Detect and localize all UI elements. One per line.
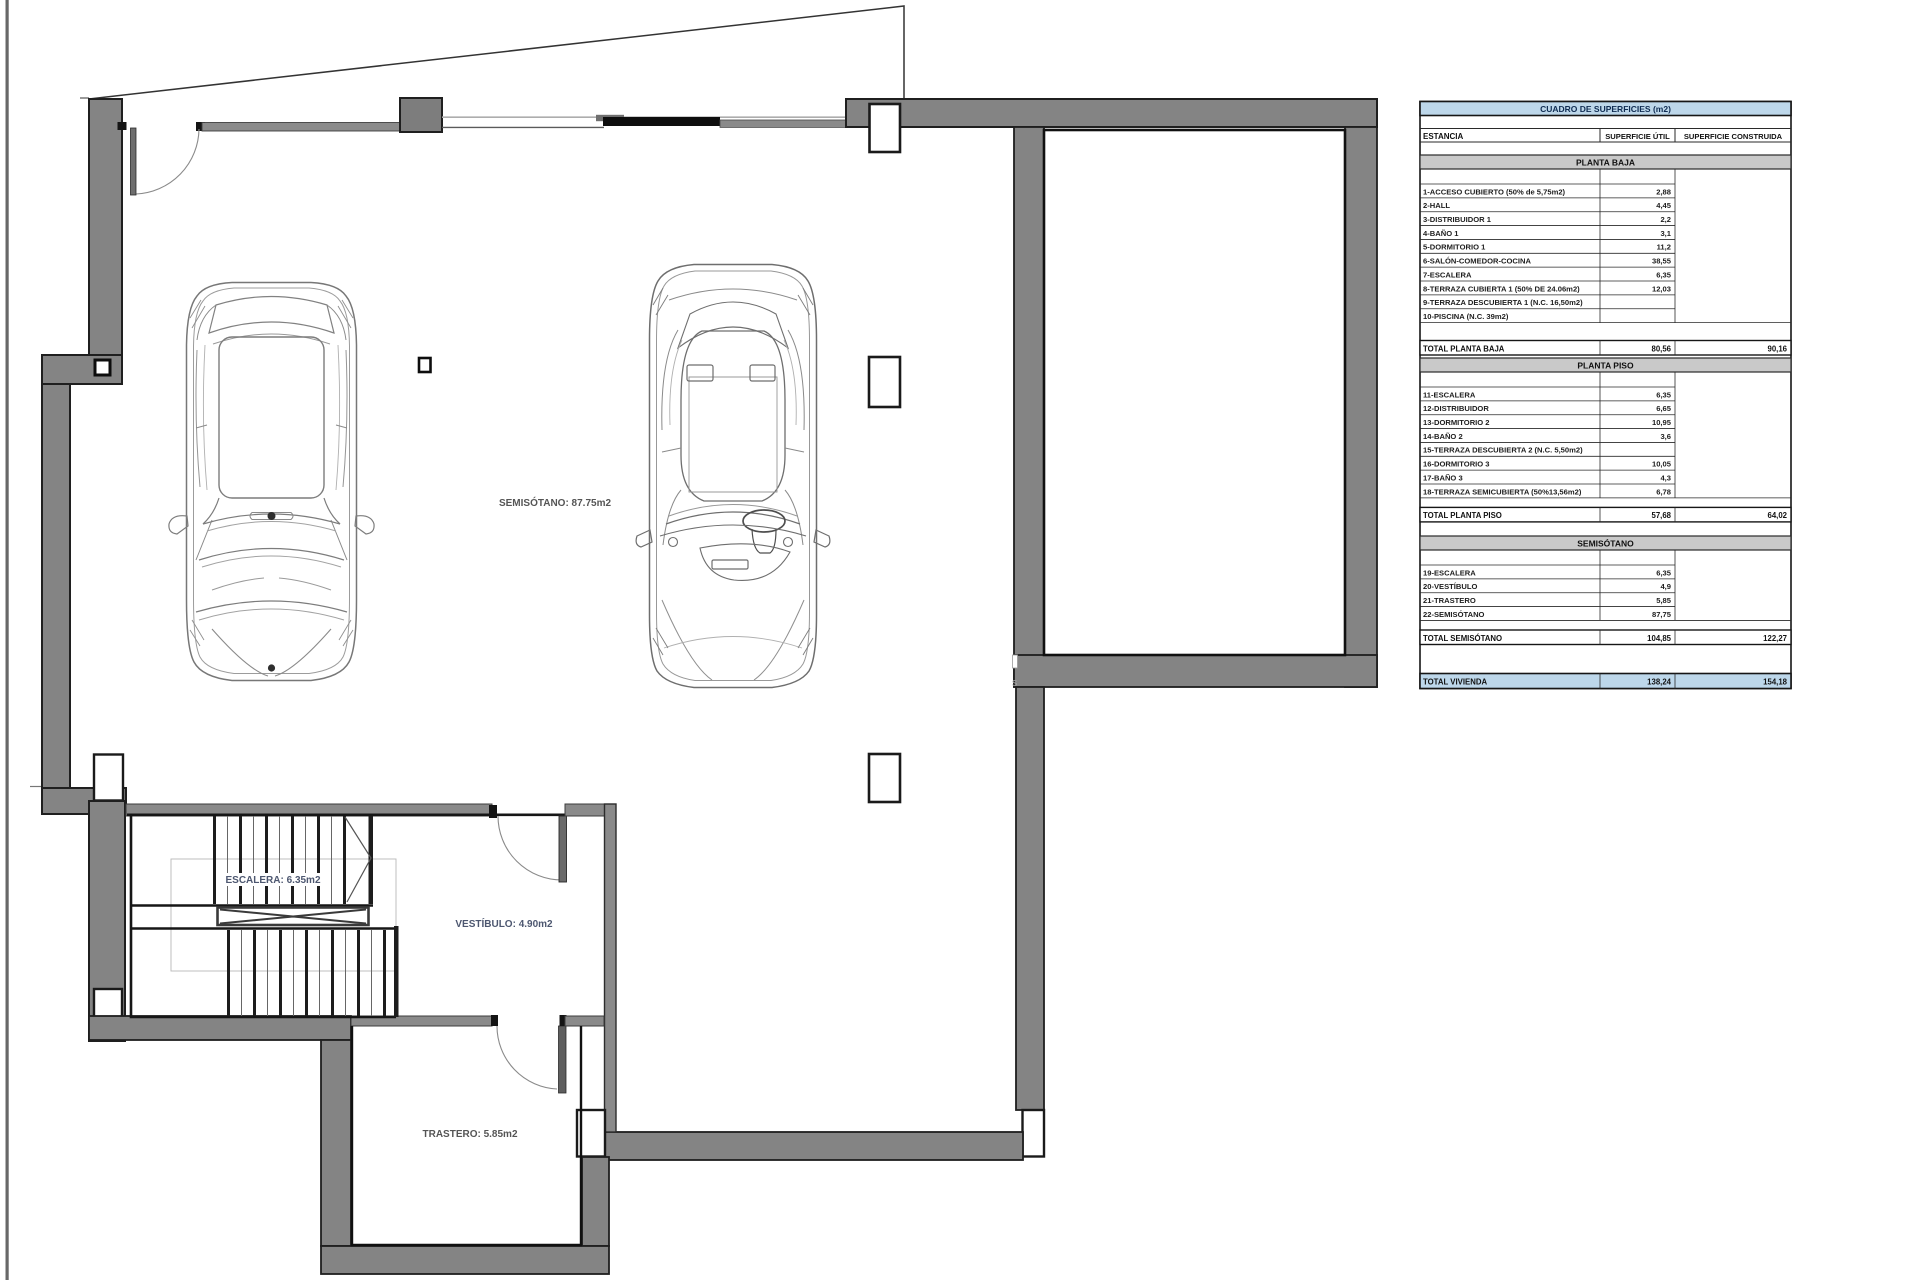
svg-text:17-BAÑO 3: 17-BAÑO 3 [1423,473,1463,482]
svg-text:6,35: 6,35 [1656,390,1672,399]
svg-text:10,95: 10,95 [1652,418,1672,427]
svg-text:57,68: 57,68 [1651,511,1671,520]
svg-text:ESCALERA: 6.35m2: ESCALERA: 6.35m2 [225,875,320,886]
svg-text:SEMISÓTANO: 87.75m2: SEMISÓTANO: 87.75m2 [499,496,612,509]
svg-text:4,9: 4,9 [1660,582,1671,591]
svg-text:20-VESTÍBULO: 20-VESTÍBULO [1423,582,1478,591]
svg-text:80,56: 80,56 [1651,344,1671,353]
svg-text:15-TERRAZA DESCUBIERTA 2 (N.C.: 15-TERRAZA DESCUBIERTA 2 (N.C. 5,50m2) [1423,446,1583,455]
svg-text:SUPERFICIE CONSTRUIDA: SUPERFICIE CONSTRUIDA [1684,132,1783,141]
svg-text:4,3: 4,3 [1660,473,1671,482]
svg-text:3-DISTRIBUIDOR 1: 3-DISTRIBUIDOR 1 [1423,215,1492,224]
svg-text:SUPERFICIE ÚTIL: SUPERFICIE ÚTIL [1605,132,1670,141]
svg-text:TRASTERO: 5.85m2: TRASTERO: 5.85m2 [422,1129,517,1140]
svg-text:2,2: 2,2 [1660,215,1671,224]
svg-text:CUADRO DE SUPERFICIES (m2): CUADRO DE SUPERFICIES (m2) [1540,104,1671,114]
svg-text:2,88: 2,88 [1656,187,1671,196]
svg-text:104,85: 104,85 [1647,634,1672,643]
svg-text:6-SALÓN-COMEDOR-COCINA: 6-SALÓN-COMEDOR-COCINA [1423,257,1532,266]
svg-text:PLANTA BAJA: PLANTA BAJA [1576,158,1635,168]
svg-text:13-DORMITORIO 2: 13-DORMITORIO 2 [1423,418,1490,427]
svg-text:12,03: 12,03 [1652,284,1671,293]
svg-text:11,2: 11,2 [1657,243,1671,252]
svg-text:5-DORMITORIO 1: 5-DORMITORIO 1 [1423,243,1486,252]
svg-text:21-TRASTERO: 21-TRASTERO [1423,596,1476,605]
svg-text:12-DISTRIBUIDOR: 12-DISTRIBUIDOR [1423,404,1489,413]
svg-text:38,55: 38,55 [1652,257,1672,266]
svg-text:19-ESCALERA: 19-ESCALERA [1423,568,1476,577]
svg-text:6,35: 6,35 [1656,270,1672,279]
svg-text:TOTAL SEMISÓTANO: TOTAL SEMISÓTANO [1423,634,1502,643]
svg-text:18-TERRAZA SEMICUBIERTA (50%13: 18-TERRAZA SEMICUBIERTA (50%13,56m2) [1423,487,1582,496]
svg-text:90,16: 90,16 [1767,344,1787,353]
svg-text:8-TERRAZA CUBIERTA 1 (50% DE 2: 8-TERRAZA CUBIERTA 1 (50% DE 24.06m2) [1423,284,1580,293]
svg-text:1-ACCESO CUBIERTO (50% de 5,75: 1-ACCESO CUBIERTO (50% de 5,75m2) [1423,187,1566,196]
svg-text:2-HALL: 2-HALL [1423,201,1450,210]
svg-text:22-SEMISÓTANO: 22-SEMISÓTANO [1423,610,1485,619]
svg-text:14-BAÑO 2: 14-BAÑO 2 [1423,432,1463,441]
svg-text:122,27: 122,27 [1763,634,1787,643]
svg-text:VESTÍBULO: 4.90m2: VESTÍBULO: 4.90m2 [455,917,553,930]
svg-text:4,45: 4,45 [1656,201,1672,210]
svg-text:138,24: 138,24 [1647,677,1672,686]
svg-text:ESTANCIA: ESTANCIA [1423,132,1464,141]
svg-text:11-ESCALERA: 11-ESCALERA [1423,390,1476,399]
svg-text:6,65: 6,65 [1656,404,1672,413]
svg-text:PLANTA PISO: PLANTA PISO [1577,361,1634,371]
svg-text:6,78: 6,78 [1656,487,1671,496]
svg-text:10,05: 10,05 [1652,460,1672,469]
svg-text:5,85: 5,85 [1656,596,1672,605]
svg-text:6,35: 6,35 [1656,568,1672,577]
svg-text:TOTAL PLANTA PISO: TOTAL PLANTA PISO [1423,511,1502,520]
svg-text:10-PISCINA (N.C. 39m2): 10-PISCINA (N.C. 39m2) [1423,312,1509,321]
svg-text:TOTAL PLANTA BAJA: TOTAL PLANTA BAJA [1423,344,1505,353]
svg-text:87,75: 87,75 [1652,610,1672,619]
svg-text:3,6: 3,6 [1660,432,1671,441]
svg-text:64,02: 64,02 [1767,511,1787,520]
svg-text:9-TERRAZA DESCUBIERTA 1 (N.C.: 9-TERRAZA DESCUBIERTA 1 (N.C. 16,50m2) [1423,298,1583,307]
svg-text:SEMISÓTANO: SEMISÓTANO [1577,538,1634,549]
svg-text:16-DORMITORIO 3: 16-DORMITORIO 3 [1423,460,1490,469]
svg-text:154,18: 154,18 [1763,677,1788,686]
svg-text:3,1: 3,1 [1660,229,1671,238]
svg-text:TOTAL VIVIENDA: TOTAL VIVIENDA [1423,677,1487,686]
svg-text:4-BAÑO 1: 4-BAÑO 1 [1423,229,1459,238]
svg-text:7-ESCALERA: 7-ESCALERA [1423,270,1472,279]
